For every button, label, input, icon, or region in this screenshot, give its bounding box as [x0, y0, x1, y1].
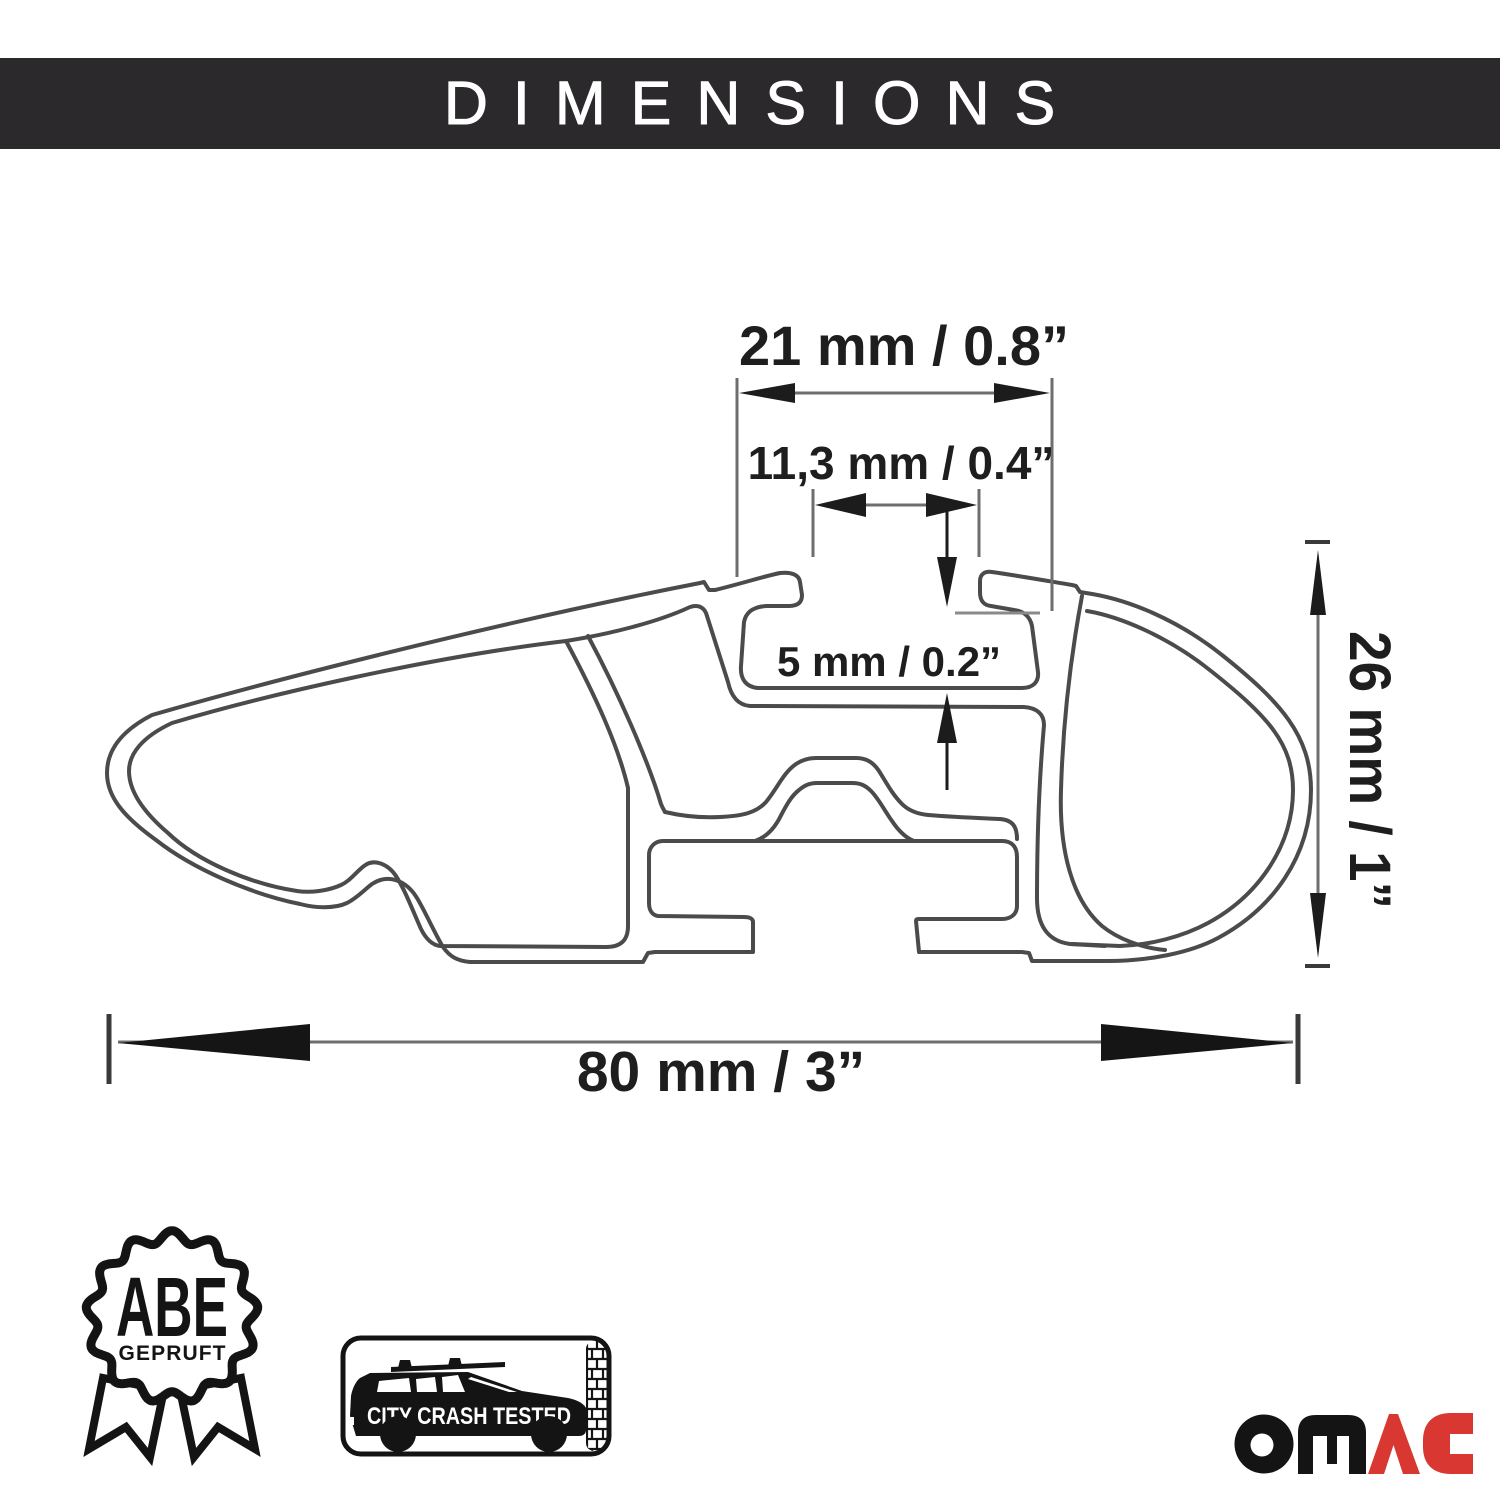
- svg-text:26 mm / 1”: 26 mm / 1”: [1337, 631, 1402, 909]
- svg-text:11,3 mm / 0.4”: 11,3 mm / 0.4”: [748, 437, 1055, 489]
- svg-text:ABE: ABE: [116, 1260, 228, 1354]
- svg-text:80 mm / 3”: 80 mm / 3”: [577, 1040, 865, 1104]
- svg-text:21 mm / 0.8”: 21 mm / 0.8”: [739, 314, 1069, 377]
- svg-text:DIMENSIONS: DIMENSIONS: [444, 69, 1080, 137]
- svg-text:5 mm / 0.2”: 5 mm / 0.2”: [777, 638, 1001, 685]
- svg-text:GEPRUFT: GEPRUFT: [119, 1342, 226, 1365]
